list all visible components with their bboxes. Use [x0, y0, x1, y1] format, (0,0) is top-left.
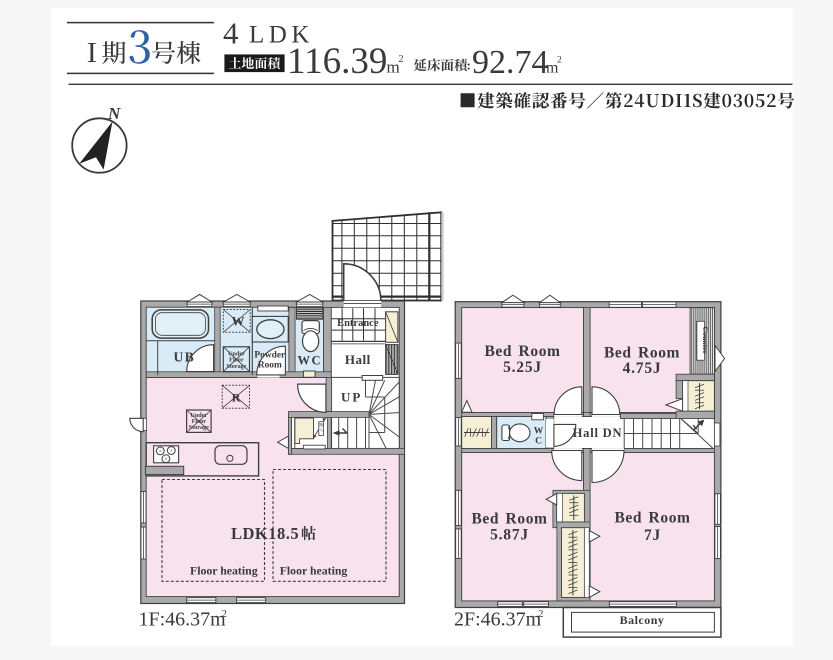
svg-text:Bed Room: Bed Room: [604, 345, 680, 362]
svg-text::: :: [467, 58, 471, 73]
svg-text:W: W: [534, 427, 544, 437]
svg-text:2: 2: [557, 56, 562, 66]
svg-text:116.39: 116.39: [287, 41, 387, 82]
svg-text:4.75J: 4.75J: [623, 360, 662, 377]
svg-text:Hall DN: Hall DN: [573, 426, 623, 440]
svg-text:2: 2: [538, 608, 544, 620]
svg-text:Bed Room: Bed Room: [614, 510, 690, 527]
svg-text:Room: Room: [258, 361, 282, 371]
svg-text:2: 2: [222, 608, 228, 620]
svg-text:92.74: 92.74: [472, 44, 549, 81]
svg-text:N: N: [107, 104, 121, 123]
svg-text:5.87J: 5.87J: [490, 527, 529, 544]
svg-text:WC: WC: [298, 354, 323, 368]
svg-text:Powder: Powder: [254, 351, 285, 361]
svg-text:1F:46.37m: 1F:46.37m: [139, 609, 227, 631]
svg-text:UP: UP: [341, 390, 362, 405]
svg-text:Hall: Hall: [345, 352, 371, 367]
svg-text:Bed Room: Bed Room: [471, 511, 547, 528]
svg-text:LDK18.5: LDK18.5: [231, 524, 299, 543]
svg-text:Counter: Counter: [701, 327, 710, 355]
svg-text:Balcony: Balcony: [620, 613, 665, 627]
svg-text:2: 2: [399, 54, 404, 65]
svg-text:2F:46.37m: 2F:46.37m: [454, 609, 542, 631]
svg-text:Bed Room: Bed Room: [484, 343, 560, 360]
svg-text:5.25J: 5.25J: [503, 359, 542, 376]
svg-text:Floor heating: Floor heating: [190, 564, 258, 578]
svg-text:UB: UB: [174, 350, 196, 365]
svg-text:4: 4: [223, 16, 241, 51]
svg-text:C: C: [535, 437, 542, 447]
svg-text:Floor heating: Floor heating: [280, 564, 348, 578]
svg-text:R: R: [232, 391, 241, 405]
svg-text:7J: 7J: [644, 527, 661, 544]
svg-text:W: W: [232, 314, 245, 329]
svg-text:Entrance: Entrance: [337, 318, 379, 329]
